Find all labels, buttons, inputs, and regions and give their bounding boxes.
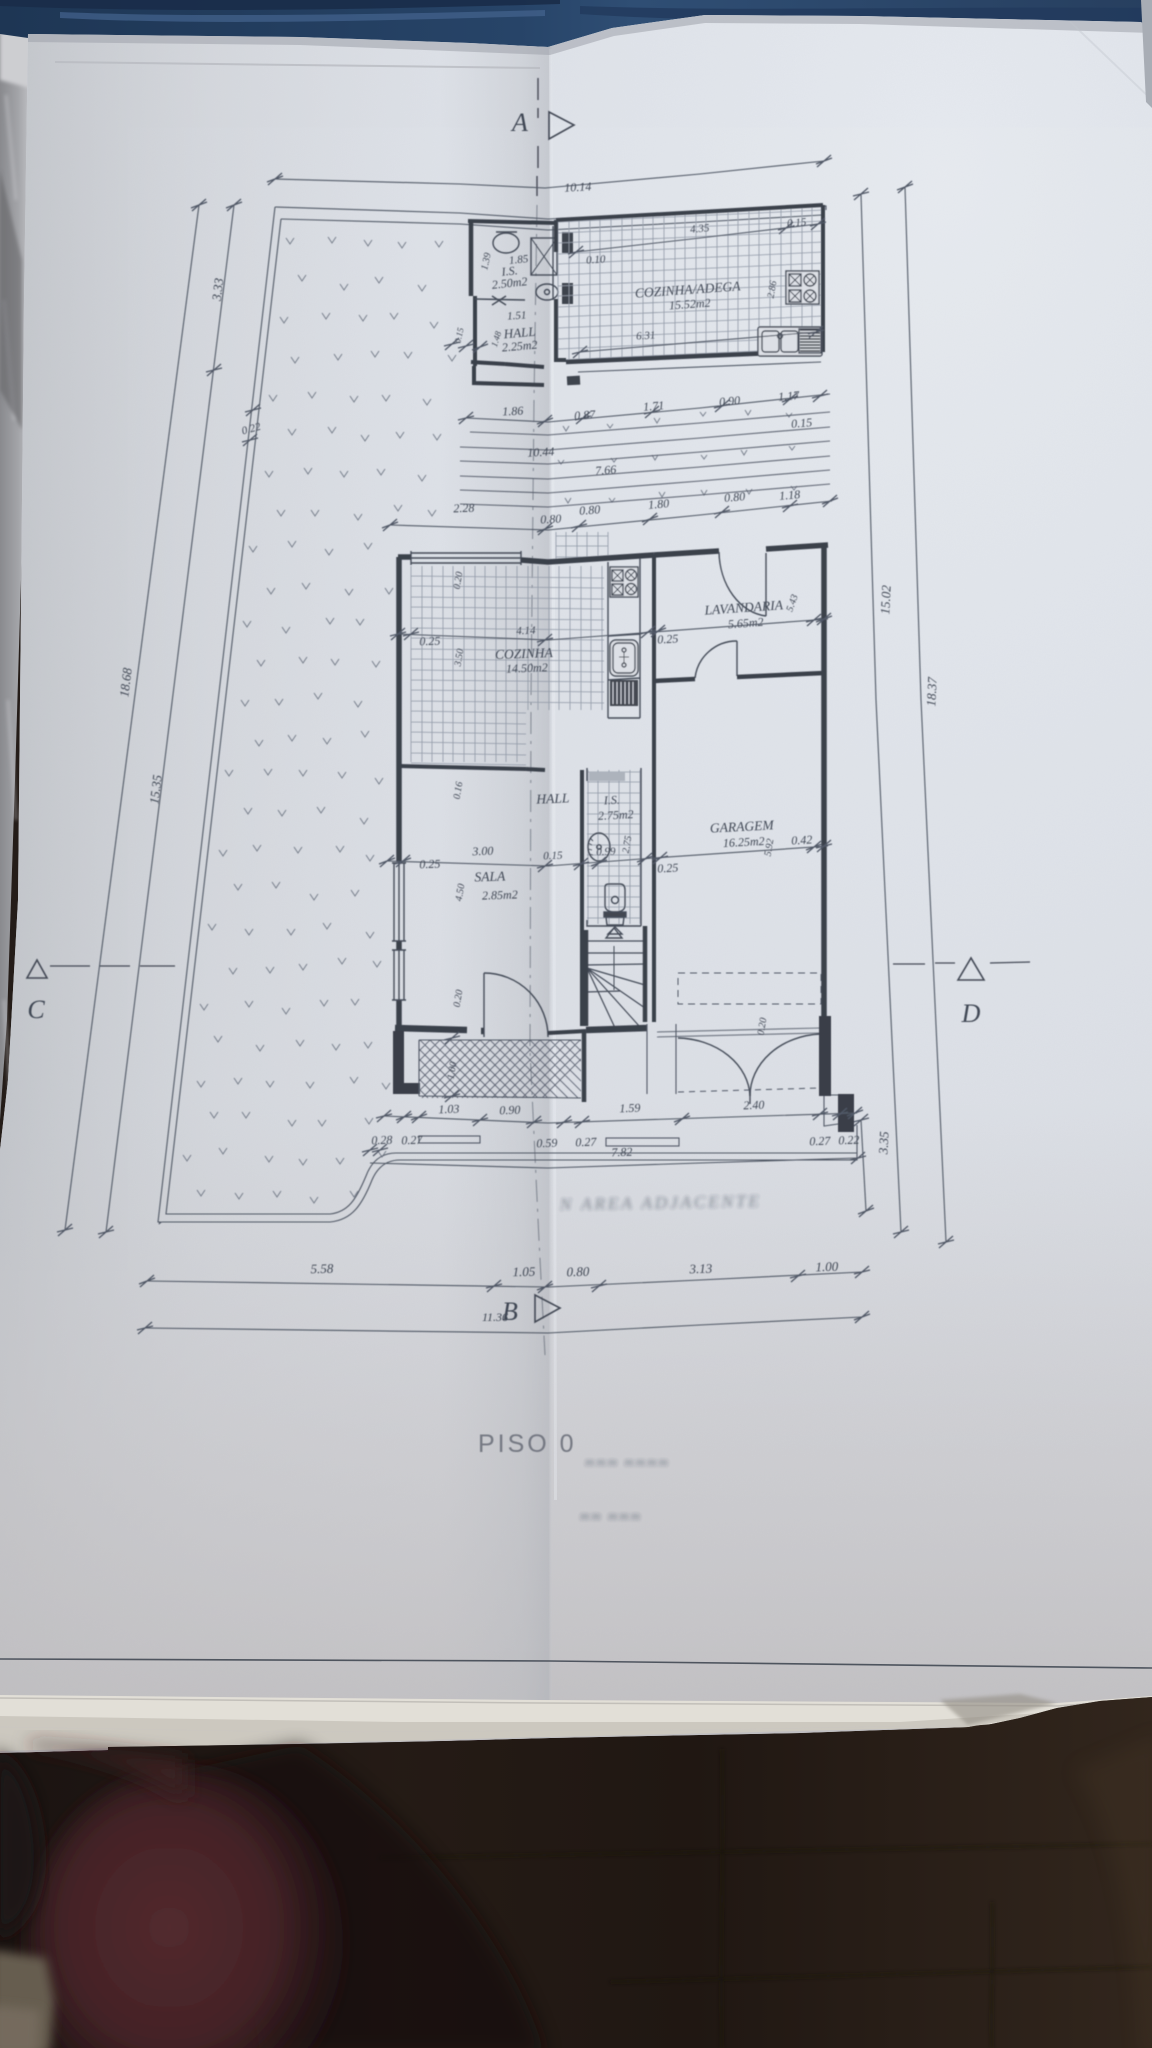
svg-text:2.28: 2.28	[453, 501, 474, 516]
svg-text:1.51: 1.51	[507, 309, 527, 322]
svg-text:6.31: 6.31	[636, 329, 656, 342]
svg-text:0.28: 0.28	[371, 1133, 392, 1148]
svg-text:0.59: 0.59	[536, 1136, 557, 1151]
svg-text:0.90: 0.90	[719, 393, 741, 409]
svg-text:1.86: 1.86	[502, 403, 524, 418]
svg-text:2.85m2: 2.85m2	[482, 887, 518, 902]
svg-text:0.15: 0.15	[791, 415, 813, 431]
svg-text:2.75m2: 2.75m2	[598, 807, 634, 823]
svg-text:2.40: 2.40	[743, 1098, 764, 1113]
svg-text:0.90: 0.90	[499, 1103, 520, 1118]
svg-text:0.25: 0.25	[419, 857, 440, 872]
svg-text:3.33: 3.33	[209, 277, 227, 303]
svg-text:1.17: 1.17	[778, 388, 801, 404]
svg-text:3.13: 3.13	[688, 1261, 713, 1277]
svg-text:0.80: 0.80	[579, 502, 601, 517]
svg-text:1.18: 1.18	[779, 487, 801, 503]
svg-text:5.58: 5.58	[310, 1261, 334, 1276]
svg-text:C: C	[27, 995, 45, 1024]
svg-text:0.99: 0.99	[596, 846, 616, 859]
svg-text:0.27: 0.27	[575, 1135, 597, 1150]
svg-text:0.80: 0.80	[540, 511, 562, 526]
svg-text:15.02: 15.02	[877, 584, 894, 614]
svg-text:0.25: 0.25	[419, 634, 440, 649]
svg-text:D: D	[961, 999, 981, 1028]
svg-text:HALL: HALL	[535, 790, 570, 806]
svg-text:0.10: 0.10	[586, 253, 607, 266]
svg-text:18.37: 18.37	[923, 676, 940, 706]
svg-text:4.35: 4.35	[690, 222, 711, 236]
svg-text:3.00: 3.00	[471, 844, 493, 859]
svg-text:mm mmm: mm mmm	[580, 1508, 642, 1523]
svg-text:1.80: 1.80	[648, 496, 670, 512]
svg-text:16.25m2: 16.25m2	[723, 834, 765, 850]
svg-text:PISO 0: PISO 0	[478, 1430, 577, 1458]
svg-text:0.15: 0.15	[543, 850, 563, 863]
svg-text:N AREA ADJACENTE: N AREA ADJACENTE	[559, 1191, 762, 1214]
svg-text:0.27: 0.27	[809, 1134, 831, 1149]
svg-text:1.05: 1.05	[512, 1264, 536, 1279]
svg-text:4.14: 4.14	[516, 625, 536, 638]
svg-text:11.36: 11.36	[482, 1310, 508, 1324]
svg-text:14.50m2: 14.50m2	[506, 660, 548, 675]
svg-text:0.42: 0.42	[791, 832, 813, 847]
svg-text:SALA: SALA	[474, 868, 506, 884]
svg-text:3.35: 3.35	[875, 1131, 891, 1156]
svg-text:0.15: 0.15	[787, 216, 808, 230]
svg-text:7.82: 7.82	[611, 1145, 632, 1160]
svg-text:10.14: 10.14	[564, 179, 592, 194]
svg-text:0.22: 0.22	[838, 1133, 859, 1148]
svg-text:15.52m2: 15.52m2	[668, 296, 711, 313]
svg-text:mmm mmmm: mmm mmmm	[585, 1454, 670, 1469]
svg-text:1.71: 1.71	[643, 398, 665, 414]
svg-text:0.25: 0.25	[657, 631, 679, 646]
svg-text:0.87: 0.87	[574, 407, 597, 423]
svg-text:0.25: 0.25	[657, 860, 679, 875]
svg-text:0.80: 0.80	[566, 1264, 590, 1279]
svg-text:5.65m2: 5.65m2	[727, 615, 764, 631]
svg-text:A: A	[510, 108, 528, 137]
svg-text:1.03: 1.03	[438, 1102, 459, 1117]
svg-text:1.00: 1.00	[815, 1259, 839, 1275]
svg-text:10.44: 10.44	[527, 444, 555, 459]
svg-text:I.S.: I.S.	[602, 793, 620, 808]
svg-text:0.27: 0.27	[401, 1133, 423, 1148]
svg-text:7.66: 7.66	[595, 462, 617, 477]
svg-text:1.59: 1.59	[619, 1101, 640, 1116]
svg-text:0.80: 0.80	[724, 489, 746, 505]
